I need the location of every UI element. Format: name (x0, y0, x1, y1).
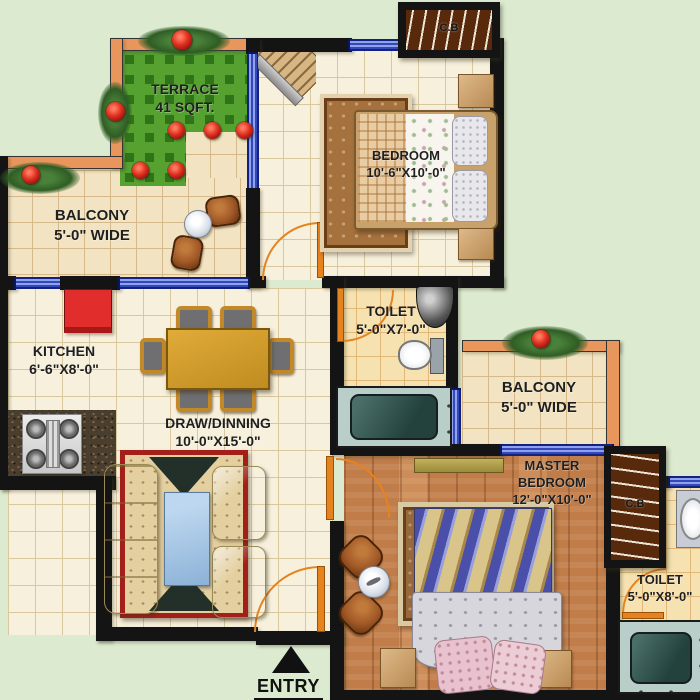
cupboard-master-label: C.B (604, 498, 666, 510)
balcony-right-wall-right (606, 340, 620, 456)
flower-balcony-right (532, 330, 550, 348)
plant-balcony-left (0, 162, 80, 194)
balcony-table (184, 210, 212, 238)
master-bench-left (380, 648, 416, 688)
burner-1 (26, 419, 46, 439)
coffee-table (164, 492, 210, 586)
washbasin-toilet2 (680, 498, 700, 540)
bedroom-wall-left-lower (246, 188, 260, 288)
dining-wall-bottom (96, 627, 258, 641)
wc-bowl-toilet1 (398, 340, 432, 370)
balcony-left-window-1 (14, 277, 66, 289)
toilet2-door-leaf (622, 612, 664, 619)
entry-label: ENTRY (254, 676, 323, 700)
table-ornament (366, 576, 382, 587)
corner-shelf (258, 52, 316, 110)
label-kitchen: KITCHEN 6'-6"X8'-0" (10, 342, 118, 378)
dining-chair-6 (268, 338, 294, 374)
label-balcony-right: BALCONY 5'-0" WIDE (472, 378, 606, 417)
label-toilet1: TOILET 5'-0"X7'-0" (338, 302, 444, 338)
master-door-leaf (326, 456, 334, 520)
bathtub-toilet2 (630, 632, 692, 684)
flower-pot-1 (168, 122, 185, 139)
label-bedroom: BEDROOM 10'-6"X10'-0" (350, 148, 462, 182)
label-terrace: TERRACE 41 SQFT. (126, 80, 244, 116)
kitchen-counter-red (64, 289, 112, 333)
cupboard-bedroom-label: C.B (398, 22, 500, 34)
toilet2-window-top (668, 476, 700, 488)
bedside-table-top (458, 74, 494, 108)
wc-tank-toilet1 (430, 338, 444, 374)
balcony-left-window-2 (118, 277, 250, 289)
kitchen-wall-left (0, 288, 8, 490)
cupboard-bedroom: C.B (398, 2, 500, 58)
flower-pot-4 (132, 162, 149, 179)
flower-terrace-top (172, 30, 192, 50)
master-side-table (358, 566, 390, 598)
stove-grill (46, 420, 60, 468)
bathtub-toilet1 (350, 394, 438, 440)
stove (22, 414, 82, 474)
burner-4 (59, 449, 79, 469)
balcony-kitchen-wall-mid (60, 276, 120, 290)
master-window-top (500, 444, 614, 456)
cupboard-master: C.B (604, 446, 666, 568)
floor-plan: C.B C.B (0, 0, 700, 700)
sofa-long (104, 464, 158, 614)
dining-table (166, 328, 270, 390)
master-pillow-2 (489, 639, 547, 696)
master-dresser (414, 458, 504, 473)
bedroom-window-top (348, 39, 404, 51)
label-draw-dining: DRAW/DINNING 10'-0"X15'-0" (146, 414, 290, 450)
label-toilet2: TOILET 5'-0"X8'-0" (620, 572, 700, 606)
label-balcony-left: BALCONY 5'-0" WIDE (22, 206, 162, 245)
label-master-bedroom: MASTER BEDROOM 12'-0"X10'-0" (500, 458, 604, 509)
dining-chair-5 (140, 338, 166, 374)
flower-pot-3 (236, 122, 253, 139)
bedroom-wall-bottom (322, 276, 504, 288)
flower-balcony-left (22, 166, 40, 184)
burner-3 (26, 449, 46, 469)
flower-terrace-left (106, 102, 125, 121)
bedroom-wall-top (258, 38, 352, 52)
armchair-1 (212, 466, 266, 540)
bedside-table-bottom (458, 228, 494, 260)
armchair-2 (212, 546, 266, 618)
entry-door-leaf (317, 566, 325, 632)
flower-pot-5 (168, 162, 185, 179)
burner-2 (59, 419, 79, 439)
master-pillow-1 (433, 635, 496, 695)
flower-pot-2 (204, 122, 221, 139)
entry-arrow-icon (272, 646, 310, 673)
master-bed-blanket (414, 508, 552, 598)
